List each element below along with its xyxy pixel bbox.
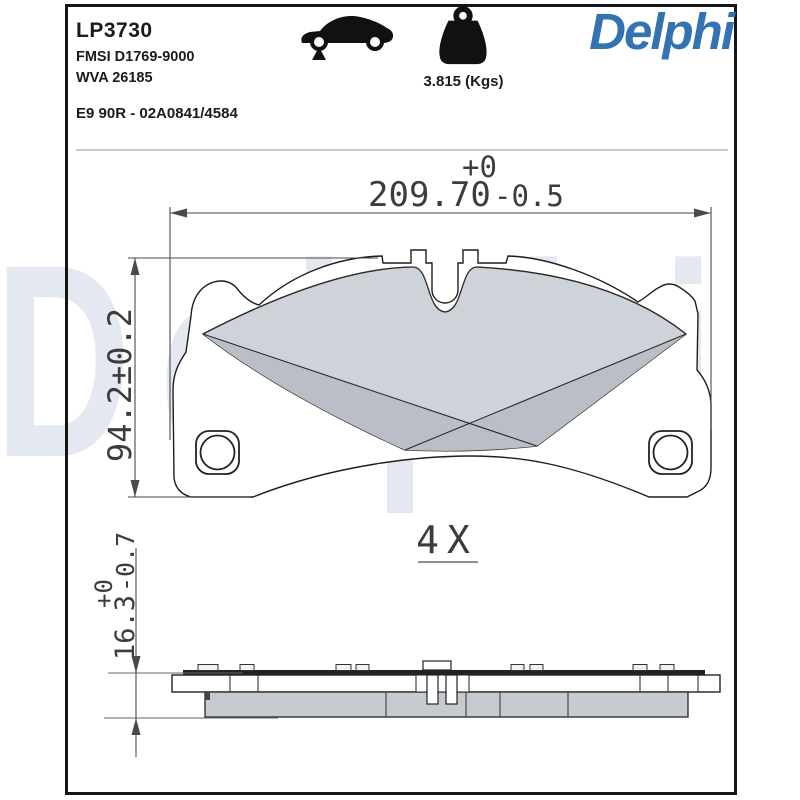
fmsi-reference: FMSI D1769-9000 <box>76 49 194 65</box>
shim-plate <box>183 670 705 675</box>
ece-approval-number: E9 90R - 02A0841/4584 <box>76 105 238 122</box>
drawing-page: Delphi LP3730 FMSI D1769-9000 WVA 26185 … <box>0 0 800 800</box>
weight-value: 3.815 (Kgs) <box>406 73 521 90</box>
car-icon <box>299 9 395 61</box>
dim-width-tol-minus: -0.5 <box>494 179 564 213</box>
dim-height-value: 94.2±0.2 <box>101 308 139 462</box>
arrowhead-top <box>131 258 140 275</box>
part-number: LP3730 <box>76 19 153 43</box>
ear-hole-right <box>649 431 692 474</box>
front-view <box>173 250 711 497</box>
dim-thickness-tol-plus: +0 <box>90 579 118 608</box>
clip-finger-left <box>427 675 438 704</box>
arrowhead-bottom <box>132 718 141 735</box>
ear-hole-left <box>196 431 239 474</box>
side-view <box>172 661 720 717</box>
center-clip-box <box>416 675 469 692</box>
arrowhead-right <box>694 209 711 218</box>
quantity-label: 4X <box>416 518 478 562</box>
header-separator-line <box>76 149 728 151</box>
friction-edge-notch <box>205 692 210 700</box>
clip-finger-right <box>446 675 457 704</box>
wva-reference: WVA 26185 <box>76 70 153 86</box>
arrowhead-left <box>170 209 187 218</box>
dim-width-tol-plus: +0 <box>462 150 497 184</box>
brand-logo: Delphi <box>553 2 733 61</box>
center-clip-top <box>423 661 451 670</box>
arrowhead-bottom <box>131 480 140 497</box>
weight-icon <box>434 6 492 72</box>
